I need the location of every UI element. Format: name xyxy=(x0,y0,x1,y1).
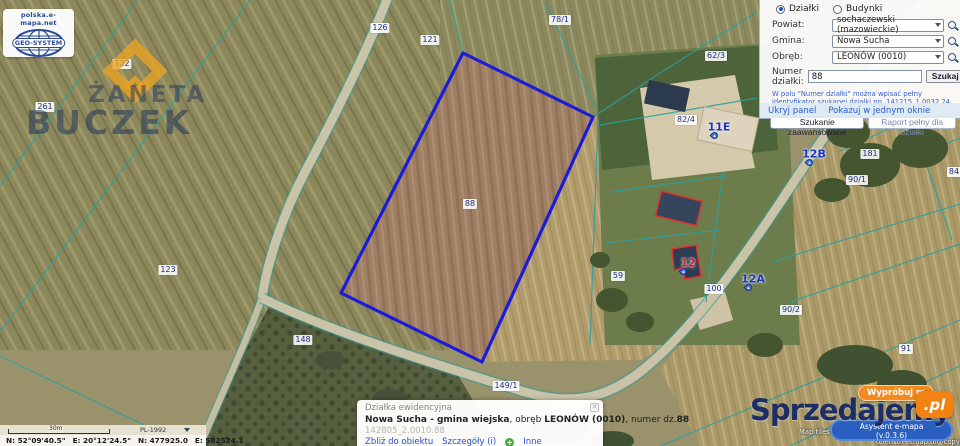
parcel-full-id: 142805_2.0010.88 xyxy=(365,426,597,436)
search-icon[interactable] xyxy=(948,21,956,29)
powiat-value: sochaczewski (mazowieckie) xyxy=(837,15,935,35)
coord-e-dms: E: 20°12'24.5" xyxy=(73,436,131,445)
other-link[interactable]: Inne xyxy=(523,437,542,446)
radio-buildings-label: Budynki xyxy=(846,4,882,14)
parcel-number-label: 149/1 xyxy=(492,381,519,391)
info-sep: , numer dz. xyxy=(625,415,676,425)
powiat-label: Powiat: xyxy=(772,20,828,30)
gmina-label: Gmina: xyxy=(772,36,828,46)
radio-buildings[interactable]: Budynki xyxy=(833,4,882,14)
parcel-number-label: 78/1 xyxy=(549,15,571,25)
parcel-number-label: 121 xyxy=(420,35,439,45)
radio-selected-icon[interactable] xyxy=(776,5,785,14)
parcel-number-label: 84 xyxy=(947,167,960,177)
logo-company-text: GEO-SYSTEM xyxy=(12,38,66,48)
parcel-obreb: LEONÓW (0010) xyxy=(544,415,625,425)
parcel-number-label: 261 xyxy=(35,102,54,112)
info-sep: , obręb xyxy=(509,415,544,425)
assistant-version: (v.0.3.6) xyxy=(832,431,951,440)
parcel-number-label: 91 xyxy=(899,344,913,354)
globe-icon: GEO-SYSTEM xyxy=(11,28,67,58)
chevron-down-icon xyxy=(935,23,941,27)
coord-n-dms: N: 52°09'40.5" xyxy=(6,436,66,445)
address-marker-label[interactable]: 12A xyxy=(741,273,765,286)
parcel-number-label: 100 xyxy=(704,284,723,294)
coordinates-bar: 30m PL-1992 N: 52°09'40.5" E: 20°12'24.5… xyxy=(0,425,206,446)
address-marker-label[interactable]: 12B xyxy=(802,148,826,161)
parcel-number-label: 148 xyxy=(293,335,312,345)
radio-parcels[interactable]: Działki xyxy=(776,4,819,14)
sprzedajemy-pl-badge: .pl xyxy=(916,391,953,418)
search-icon[interactable] xyxy=(948,37,956,45)
single-window-link[interactable]: Pokazuj w jednym oknie xyxy=(828,106,930,116)
parcel-number-input[interactable] xyxy=(808,70,922,83)
info-panel-title: Działka ewidencyjna xyxy=(365,403,597,413)
parcel-number-label: 90/2 xyxy=(780,305,802,315)
chevron-down-icon xyxy=(935,55,941,59)
address-marker-label[interactable]: 11E xyxy=(708,121,731,134)
parcel-number-label: 90/1 xyxy=(846,175,868,185)
gmina-value: Nowa Sucha xyxy=(837,36,889,46)
parcel-name: Nowa Sucha - gmina wiejska xyxy=(365,415,509,425)
zoom-to-object-link[interactable]: Zbliż do obiektu xyxy=(365,437,433,446)
chevron-down-icon[interactable] xyxy=(184,428,190,432)
parcel-number-label: 62/3 xyxy=(705,51,727,61)
obreb-select[interactable]: LEONÓW (0010) xyxy=(832,51,944,64)
parcel-number-label: 181 xyxy=(860,149,879,159)
parcel-number-field-label: Numer działki: xyxy=(772,67,804,87)
obreb-value: LEONÓW (0010) xyxy=(837,52,906,62)
coord-e-pl: E: 582524.1 xyxy=(195,436,244,445)
gmina-select[interactable]: Nowa Sucha xyxy=(832,35,944,48)
crs-selector[interactable]: PL-1992 xyxy=(140,426,166,434)
search-panel: Działki Budynki Powiat: sochaczewski (ma… xyxy=(759,0,960,119)
details-link[interactable]: Szczegóły (i) xyxy=(442,437,496,446)
powiat-select[interactable]: sochaczewski (mazowieckie) xyxy=(832,19,944,32)
logo-site-text: polska.e-mapa.net xyxy=(3,11,74,27)
map-tiles-attribution: Map tiles xyxy=(799,428,830,436)
geosystem-logo[interactable]: polska.e-mapa.net GEO-SYSTEM xyxy=(3,9,74,57)
radio-unselected-icon[interactable] xyxy=(833,5,842,14)
search-icon[interactable] xyxy=(948,53,956,61)
hide-panel-link[interactable]: Ukryj panel xyxy=(768,106,816,116)
parcel-number: 88 xyxy=(677,415,690,425)
parcel-number-label: 59 xyxy=(611,271,625,281)
parcel-number-label: 88 xyxy=(463,199,477,209)
parcel-number-label: 123 xyxy=(158,265,177,275)
chevron-down-icon xyxy=(935,39,941,43)
close-icon[interactable]: ✕ xyxy=(590,403,599,412)
parcel-number-label: 82/4 xyxy=(675,115,697,125)
geoportal-screen: 12212612178/126162/382/41818490/18812359… xyxy=(0,0,960,446)
coord-n-pl: N: 477925.0 xyxy=(138,436,188,445)
search-button[interactable]: Szukaj xyxy=(926,70,960,83)
add-icon[interactable] xyxy=(505,438,514,446)
radio-parcels-label: Działki xyxy=(789,4,819,14)
parcel-info-panel: Działka ewidencyjna ✕ Nowa Sucha - gmina… xyxy=(357,400,603,446)
parcel-number-label: 126 xyxy=(370,23,389,33)
obreb-label: Obręb: xyxy=(772,52,828,62)
scale-distance: 30m xyxy=(48,425,63,433)
